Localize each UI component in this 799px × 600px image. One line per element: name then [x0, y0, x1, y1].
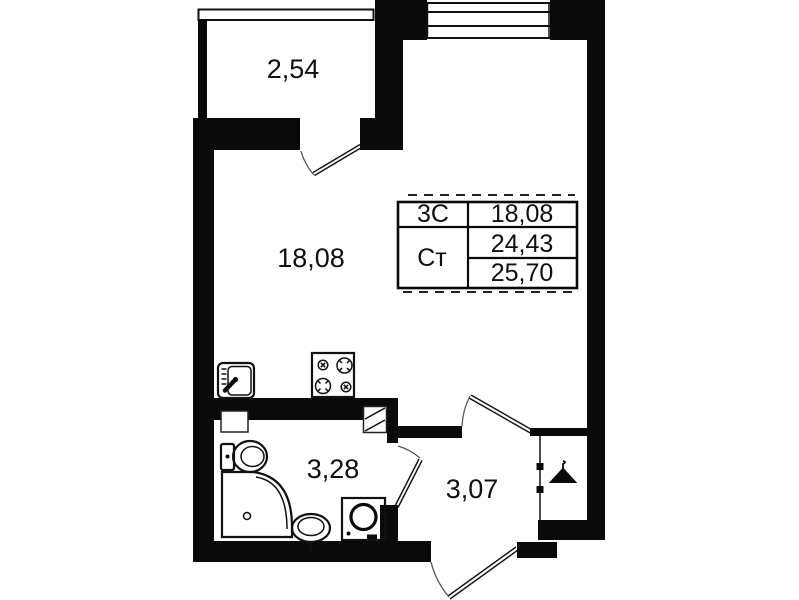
wall-closet-bottom [538, 520, 605, 540]
stamp-room-type-2: Ст [417, 244, 447, 272]
floor-plan-canvas: 2,54 [0, 0, 799, 600]
living-room-door [462, 395, 534, 434]
stamp-room-type-1: 3С [417, 200, 449, 228]
hanger-icon [551, 461, 575, 482]
balcony-door-arc [301, 151, 314, 175]
hallway-area-label: 3,07 [446, 474, 499, 504]
bathroom-area-label: 3,28 [307, 454, 360, 484]
bathroom-door [395, 446, 422, 508]
stamp-value-3: 25,70 [491, 259, 554, 287]
vent-shaft-icon [364, 407, 387, 433]
balcony-area-label: 2,54 [267, 54, 320, 84]
wall-balcony-divider [375, 40, 403, 120]
balcony: 2,54 [198, 10, 374, 120]
wall-hallway-top [398, 426, 462, 438]
wall-entry-stub [517, 542, 557, 558]
closet-door-hinge-top [537, 463, 544, 470]
wall-top-right-corner [550, 0, 605, 40]
living-room-area-label: 18,08 [277, 243, 345, 273]
stove-icon [312, 353, 354, 397]
wall-right [587, 40, 605, 540]
stamp-value-1: 18,08 [491, 200, 554, 228]
wall-closet-top [530, 428, 588, 436]
wall-left [193, 118, 214, 562]
wall-niche [221, 411, 248, 432]
balcony-glazing [199, 10, 374, 21]
living-room-door-arc [462, 396, 470, 426]
bathroom-door-arc [398, 446, 420, 458]
wall-top-pier [375, 0, 427, 40]
closet-door-hinge-bottom [537, 486, 544, 493]
washing-machine-icon [342, 498, 385, 540]
entrance-door-arc [431, 562, 449, 597]
window-icon [427, 3, 550, 38]
wall-vent-right [387, 398, 398, 443]
balcony-left-wall [198, 19, 207, 119]
stamp-table: 3С 18,08 Ст 24,43 25,70 [398, 195, 577, 292]
stamp-value-2: 24,43 [491, 230, 554, 258]
toilet-icon [221, 441, 267, 472]
closet [537, 436, 576, 520]
entrance-door [431, 547, 518, 599]
kitchen-sink-icon [218, 363, 254, 398]
wall-bathroom-door-stub [380, 505, 398, 543]
balcony-door [301, 145, 362, 176]
wall-bottom [193, 541, 431, 562]
wall-below-balcony-right [360, 118, 403, 150]
shower-tray-icon [222, 472, 292, 537]
floor-plan: 2,54 [0, 0, 799, 600]
